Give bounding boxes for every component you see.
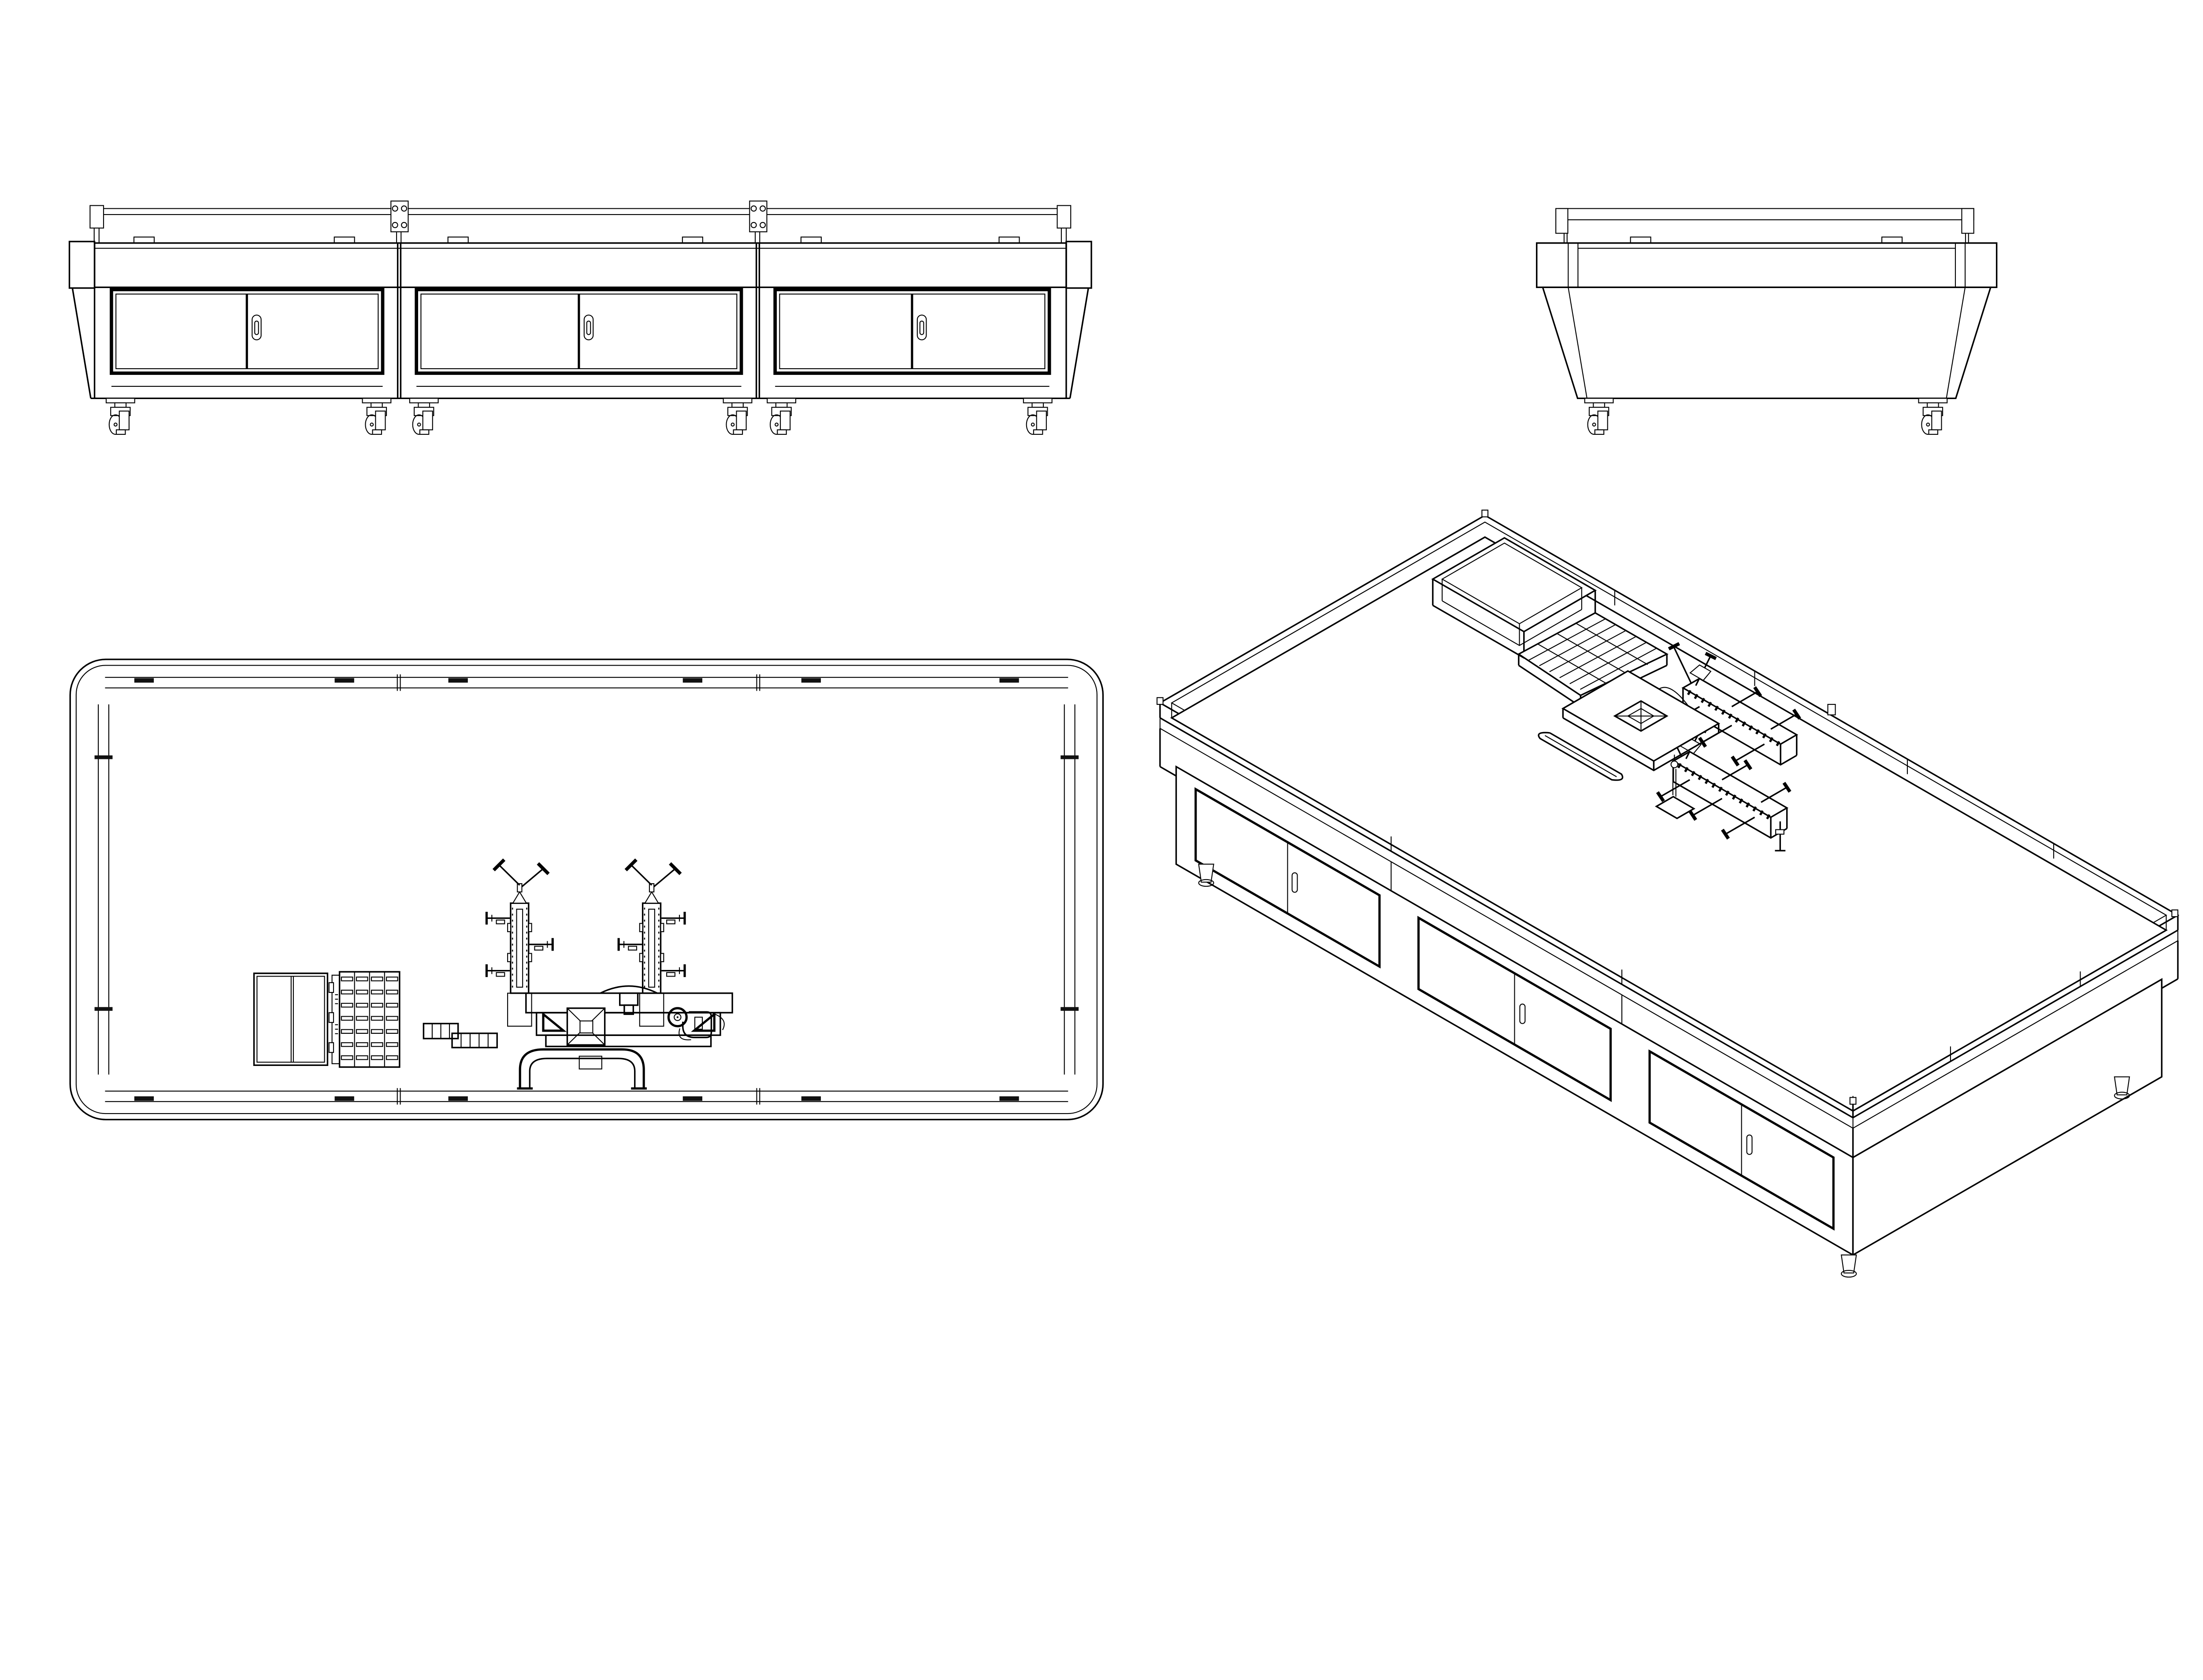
cross-square [567, 1008, 605, 1045]
corner-post-left [90, 206, 104, 228]
corner-post-right [1057, 206, 1071, 228]
lid-corner-tab [1962, 208, 1973, 233]
drawing-page [0, 0, 2203, 1431]
iso-rail-joint-plate [1828, 704, 1835, 715]
lid-corner-tab [1556, 208, 1568, 233]
technical-drawing-canvas [0, 0, 2203, 1431]
rail-clip [1882, 237, 1902, 243]
rail-clip [1631, 237, 1651, 243]
